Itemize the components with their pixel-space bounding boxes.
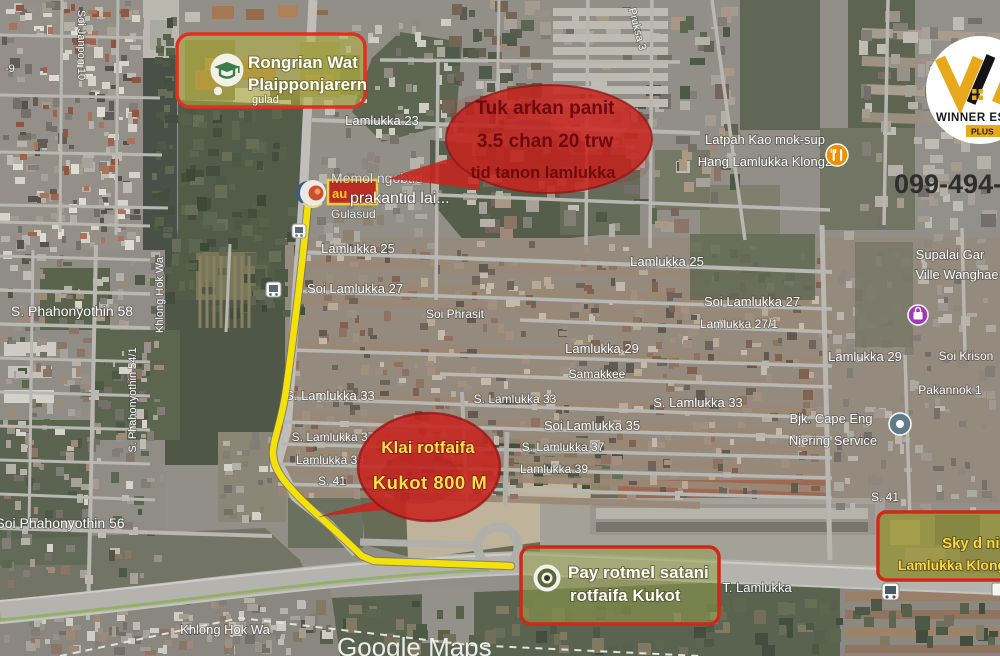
svg-text:Tuk arkan panit: Tuk arkan panit	[475, 98, 615, 119]
svg-text:Lamlukka 27/1: Lamlukka 27/1	[700, 317, 778, 331]
svg-text:S. Lamlukka 37: S. Lamlukka 37	[522, 440, 605, 454]
svg-text:Lamlukka 25: Lamlukka 25	[321, 241, 395, 256]
svg-text:Soi Lamlukka 27: Soi Lamlukka 27	[704, 294, 800, 309]
svg-text:WINNER EST: WINNER EST	[936, 112, 1000, 124]
svg-text:Kukot 800 M: Kukot 800 M	[373, 472, 487, 493]
svg-text:Lamlukka 25: Lamlukka 25	[630, 254, 704, 269]
svg-text:S. Lamlukka 37: S. Lamlukka 37	[292, 430, 375, 444]
svg-text:Latpah Kao mok-sup: Latpah Kao mok-sup	[705, 132, 825, 147]
svg-text:rotfaifa Kukot: rotfaifa Kukot	[570, 586, 681, 605]
svg-text:Ville Wanghae: Ville Wanghae	[915, 267, 998, 282]
svg-text:tid tanon lamlukka: tid tanon lamlukka	[471, 164, 617, 182]
svg-text:S. Phahonyothin 58: S. Phahonyothin 58	[11, 303, 133, 319]
svg-text:gulad: gulad	[252, 94, 279, 106]
svg-text:Gulasud: Gulasud	[331, 207, 376, 221]
svg-text:Bjk. Cape Eng: Bjk. Cape Eng	[789, 411, 872, 426]
svg-text:S. Lamlukka 33: S. Lamlukka 33	[474, 392, 557, 406]
svg-text:Pakannok 1: Pakannok 1	[918, 383, 982, 397]
svg-text:Soi Krison: Soi Krison	[939, 349, 994, 363]
svg-text:S. Lamlukka 33: S. Lamlukka 33	[653, 395, 743, 410]
svg-text:Soi Phrasit: Soi Phrasit	[426, 307, 485, 321]
svg-text:Khlong Hok Wa: Khlong Hok Wa	[154, 256, 166, 333]
svg-text:Lamlukka 23: Lamlukka 23	[345, 113, 419, 128]
svg-text:Plaipponjarern: Plaipponjarern	[248, 75, 367, 94]
svg-text:S. 41: S. 41	[318, 474, 346, 488]
svg-text:Lamlukka 39: Lamlukka 39	[520, 462, 588, 476]
svg-text:099-494-: 099-494-	[894, 169, 1000, 199]
svg-text:Soi Phahonyothin 56: Soi Phahonyothin 56	[0, 515, 125, 531]
svg-text:Lamlukka 29: Lamlukka 29	[828, 349, 902, 364]
svg-text:Lamlukka Klong: Lamlukka Klong	[898, 557, 1000, 573]
svg-text:T. Lamlukka: T. Lamlukka	[722, 580, 792, 595]
svg-text:Lamlukka 29: Lamlukka 29	[565, 341, 639, 356]
svg-text:Lamlukka 39: Lamlukka 39	[296, 453, 364, 467]
svg-text:S. Phahonyothin 54/1: S. Phahonyothin 54/1	[127, 347, 139, 452]
svg-text:Klai rotfaifa: Klai rotfaifa	[381, 438, 475, 457]
svg-text:PLUS: PLUS	[971, 127, 994, 137]
svg-text:Sky d nis: Sky d nis	[942, 535, 1000, 552]
svg-text:3.5 chan 20 trw: 3.5 chan 20 trw	[477, 131, 613, 152]
svg-text:Rongrian Wat: Rongrian Wat	[248, 53, 358, 72]
svg-text:Supalai Gar: Supalai Gar	[916, 247, 985, 262]
svg-text:au: au	[332, 186, 347, 201]
svg-text:Soi Lamlukka 35: Soi Lamlukka 35	[544, 418, 640, 433]
svg-text:Hang Lamlukka Klong2: Hang Lamlukka Klong2	[698, 154, 832, 169]
svg-text:Google Maps: Google Maps	[337, 632, 492, 656]
svg-text:Niering Service: Niering Service	[789, 433, 877, 448]
svg-text:-9: -9	[5, 63, 15, 75]
svg-text:S. Lamlukka 33: S. Lamlukka 33	[285, 388, 375, 403]
svg-text:S. 41: S. 41	[871, 490, 899, 504]
svg-text:Khlong Hok Wa: Khlong Hok Wa	[180, 622, 271, 637]
svg-text:Pay rotmel satani: Pay rotmel satani	[568, 563, 709, 582]
svg-text:Samakkee: Samakkee	[569, 367, 626, 381]
svg-text:Soi Lamlukka 27: Soi Lamlukka 27	[307, 281, 403, 296]
svg-text:prakantid lai...: prakantid lai...	[350, 190, 450, 207]
svg-text:Soi Janpon 10: Soi Janpon 10	[75, 10, 87, 80]
